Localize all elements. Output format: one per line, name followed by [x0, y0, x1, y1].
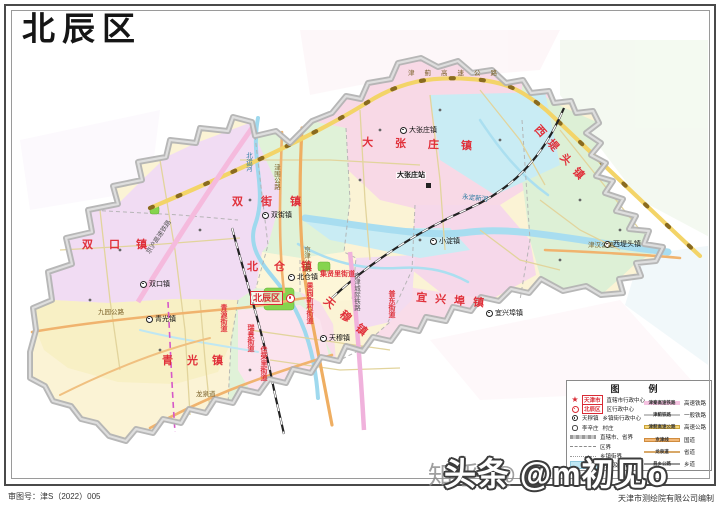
- town-center-icon: [486, 310, 493, 317]
- village-icon: [572, 425, 578, 431]
- town-center-icon: [146, 316, 153, 323]
- road-label-jingjin: 京津公路: [302, 246, 309, 272]
- district-boundary-symbol: [570, 446, 596, 447]
- town-marker-qingguang: 青光镇: [146, 314, 176, 324]
- town-center-icon: [400, 127, 407, 134]
- legend-item: 津秦高速铁路 高速铁路: [644, 397, 714, 409]
- legend-item: 京津线 国道: [644, 434, 714, 446]
- town-center-icon: [320, 335, 327, 342]
- town-marker-beicang: 北仓镇: [288, 272, 318, 282]
- town-center-icon: [572, 415, 578, 421]
- district-center-icon: [572, 406, 579, 413]
- railway-symbol: 津蓟铁路: [644, 411, 680, 419]
- district-center-marker: 北辰区: [250, 291, 295, 305]
- provincial-boundary-symbol: [570, 435, 596, 439]
- station-label-dazhangzhuang: 大张庄站: [396, 172, 426, 179]
- legend-item: 津蓟高速公路 高速公路: [644, 421, 714, 433]
- page-title: 北辰区: [22, 12, 142, 45]
- legend-title: 图 例: [570, 383, 708, 395]
- provincial-road-symbol: 龙泉道: [644, 448, 680, 456]
- street-label-pudong: 普东街道: [388, 290, 395, 318]
- town-marker-tianmu: 天穆镇: [320, 333, 350, 343]
- town-marker-shuangkou: 双口镇: [140, 279, 170, 289]
- road-label-jinhan: 津汉公路: [588, 243, 614, 250]
- legend-item: 津蓟铁路 一般铁路: [644, 409, 714, 421]
- street-label-ruijing: 瑞景街道: [247, 324, 254, 352]
- town-marker-shuangjie: 双街镇: [262, 210, 292, 220]
- town-marker-xiaodian: 小淀镇: [430, 236, 460, 246]
- map-review-number: 审图号：津S（2022）005: [8, 493, 100, 501]
- district-name-box: 北辰区: [250, 291, 283, 305]
- road-label-jiuyuan: 九园公路: [98, 310, 124, 317]
- legend-item: 天穆镇 乡镇街行政中心: [570, 414, 642, 423]
- township-label-shuangjie: 双街镇: [232, 197, 319, 208]
- road-label-longquan: 龙泉道: [196, 392, 216, 399]
- road-label-jinji-expressway: 津蓟高速公路: [408, 71, 507, 78]
- town-center-icon: [430, 238, 437, 245]
- map-page: 大张庄镇 双街镇 双口镇 青光镇 天穆镇 北仓镇 宜兴埠镇 西堤头镇 果园新村街…: [0, 0, 720, 509]
- expressway-symbol: 津蓟高速公路: [644, 423, 680, 431]
- hsr-symbol: 津秦高速铁路: [644, 399, 680, 407]
- legend-item: 直辖市、省界: [570, 433, 642, 442]
- river-label-beiyun: 北运河: [244, 152, 251, 172]
- street-label-guoyuanxincun: 果园新村街道: [306, 282, 313, 324]
- station-square: [426, 183, 431, 188]
- legend-item: 北辰区 区行政中心: [570, 404, 642, 413]
- legend-item: 李辛庄 村庄: [570, 423, 642, 432]
- legend-item: ★ 天津市 直辖市行政中心: [570, 395, 642, 404]
- town-center-icon: [288, 274, 295, 281]
- district-center-icon: [286, 294, 295, 303]
- rail-label-intercity: 京津城际铁路: [352, 272, 359, 311]
- road-label-jinwei: 津围公路: [272, 164, 279, 190]
- capital-star-icon: ★: [571, 396, 578, 404]
- township-label-qingguang: 青光镇: [162, 356, 237, 367]
- town-center-icon: [262, 212, 269, 219]
- town-center-icon: [140, 281, 147, 288]
- street-label-qingyuan: 青源街道: [220, 304, 227, 332]
- street-label-jixianli: 集贤里街道: [320, 271, 355, 278]
- street-label-jiarongli: 佳荣里街道: [260, 346, 267, 381]
- town-marker-yixingbu: 宜兴埠镇: [486, 308, 523, 318]
- legend-item: 区界: [570, 442, 642, 451]
- town-marker-dazhangzhuang: 大张庄镇: [400, 125, 437, 135]
- national-road-symbol: 京津线: [644, 436, 680, 444]
- toutiao-watermark: 头条 @m初见o: [444, 458, 668, 490]
- publisher-credit: 天津市测绘院有限公司编制: [618, 495, 714, 503]
